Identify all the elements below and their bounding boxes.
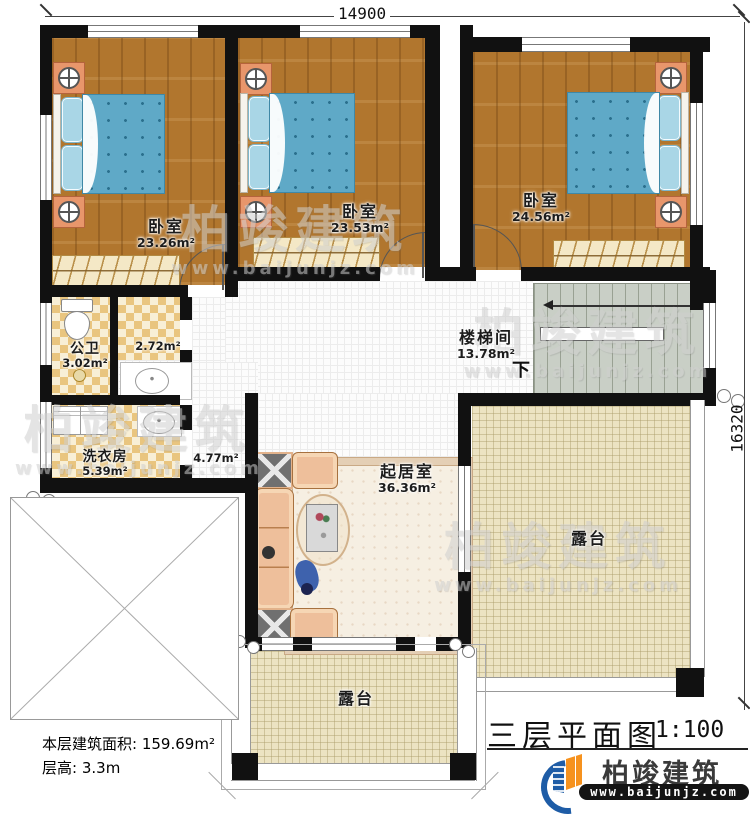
pillar — [232, 753, 258, 780]
dimension-label-right: 16320 — [728, 395, 747, 463]
room-label-bathroom: 公卫 3.02m² — [62, 341, 107, 370]
bed — [567, 92, 689, 194]
column — [449, 638, 462, 651]
nightstand — [240, 63, 272, 95]
sink — [143, 411, 175, 434]
room-label-bedroom3: 卧室 24.56m² — [512, 192, 570, 225]
wall — [110, 297, 118, 395]
headboard — [240, 93, 248, 193]
stair-rail — [540, 327, 664, 341]
floor-area-note: 本层建筑面积: 159.69m² — [42, 733, 215, 754]
wall — [458, 406, 471, 466]
dimension-line-top — [45, 16, 740, 17]
washing-machine — [80, 406, 108, 435]
bed — [53, 94, 165, 194]
room-label-closet: 2.72m² — [135, 340, 180, 353]
title-divider — [487, 748, 748, 750]
window — [458, 466, 471, 572]
sink — [135, 368, 169, 394]
pillow — [249, 97, 270, 141]
pillow — [659, 96, 680, 140]
wardrobe — [52, 255, 180, 287]
nightstand — [655, 62, 687, 94]
wall — [245, 393, 258, 651]
roof-skylight — [10, 497, 239, 720]
logo-building-icon — [566, 754, 582, 790]
room-label-terrace-bottom: 露台 — [338, 690, 374, 708]
wall — [425, 267, 476, 281]
window — [40, 303, 52, 365]
logo-building-icon — [553, 762, 564, 793]
dimension-line-right — [744, 22, 745, 710]
pillar — [450, 753, 476, 780]
clock-icon — [660, 201, 682, 223]
nightstand — [53, 196, 85, 228]
room-label-living: 起居室 36.36m² — [378, 463, 436, 496]
room-label-corridor: 4.77m² — [193, 452, 238, 465]
stair-down-label: 下 — [512, 356, 530, 382]
wall — [180, 405, 192, 430]
floor-plan-canvas: 14900 16320 柏竣建筑 www.baijunjz.com 柏竣建筑 w… — [0, 0, 750, 814]
room-label-laundry: 洗衣房 5.39m² — [82, 449, 127, 478]
window — [690, 103, 703, 225]
pillow — [659, 146, 680, 190]
blanket — [567, 92, 660, 194]
door-leaf — [473, 224, 475, 270]
person-head — [301, 583, 313, 595]
column — [462, 645, 475, 658]
coffee-table — [306, 504, 338, 552]
blanket — [82, 94, 165, 194]
column — [247, 641, 260, 654]
window — [88, 25, 198, 38]
window — [522, 37, 630, 52]
wall — [425, 25, 440, 281]
brand-url: www.baijunjz.com — [579, 784, 749, 800]
dimension-tick — [40, 4, 53, 17]
clock-icon — [660, 67, 682, 89]
pillow — [62, 98, 83, 142]
door-leaf — [222, 244, 224, 290]
sheet-fold — [83, 95, 98, 193]
wall — [458, 393, 716, 406]
cushion — [262, 546, 275, 559]
nightstand — [240, 196, 272, 228]
stair-direction-arrow — [538, 300, 553, 310]
terrace-railing — [231, 763, 475, 781]
door-leaf — [422, 232, 424, 278]
room-label-stairwell: 楼梯间 13.78m² — [457, 329, 515, 362]
wall — [180, 297, 192, 320]
armchair — [256, 452, 293, 489]
blanket — [269, 93, 355, 193]
terrace-railing — [690, 400, 705, 677]
wall — [40, 285, 188, 297]
window — [40, 402, 52, 468]
washing-machine — [53, 406, 81, 435]
pillar — [676, 668, 704, 697]
window — [703, 303, 716, 368]
window — [40, 115, 52, 200]
room-label-terrace-right: 露台 — [571, 530, 607, 548]
pillow — [249, 145, 270, 189]
clock-icon — [245, 68, 267, 90]
floor-height-note: 层高: 3.3m — [42, 757, 120, 778]
terrace-railing — [472, 677, 703, 692]
loveseat — [292, 452, 338, 489]
clock-icon — [245, 201, 267, 223]
wardrobe — [253, 237, 380, 269]
wall — [225, 38, 238, 297]
sheet-fold — [270, 94, 285, 192]
pillow — [62, 146, 83, 190]
bed — [240, 93, 355, 193]
clock-icon — [58, 67, 80, 89]
nightstand — [655, 196, 687, 228]
wall — [52, 395, 180, 405]
headboard — [53, 94, 61, 194]
floor-drain-icon — [73, 369, 86, 382]
wall — [460, 25, 473, 281]
stair-direction-line — [552, 305, 692, 307]
window — [300, 25, 410, 38]
clock-icon — [58, 201, 80, 223]
wall — [180, 350, 192, 362]
sheet-fold — [644, 93, 659, 193]
dimension-label-top: 14900 — [334, 4, 390, 23]
room-label-bedroom1: 卧室 23.26m² — [137, 218, 195, 251]
headboard — [681, 92, 689, 194]
room-label-bedroom2: 卧室 23.53m² — [331, 203, 389, 236]
nightstand — [53, 62, 85, 94]
wall — [225, 267, 380, 281]
wall — [40, 478, 258, 493]
wall — [521, 267, 710, 281]
plan-scale: 1:100 — [655, 717, 724, 743]
